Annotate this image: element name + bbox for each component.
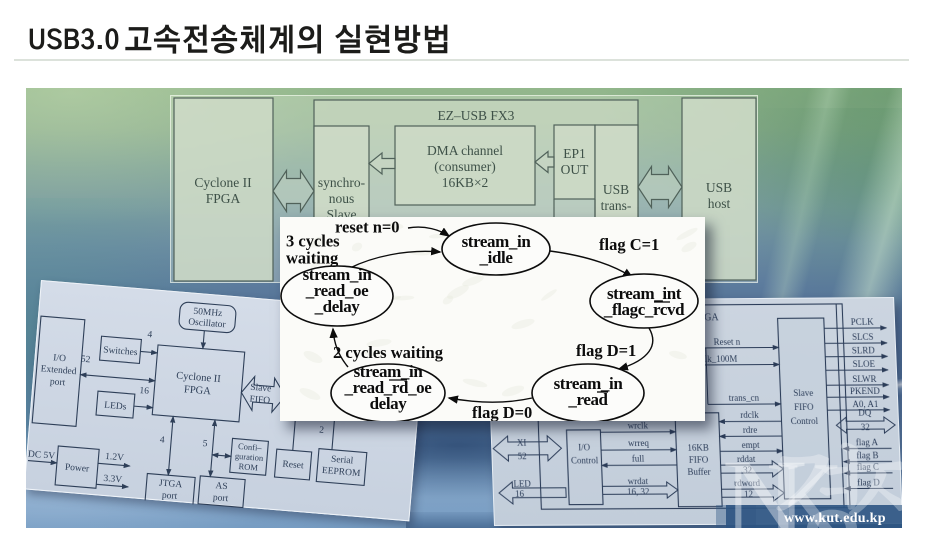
svg-text:3.3V: 3.3V	[103, 474, 123, 486]
svg-text:EZ–USB FX3: EZ–USB FX3	[438, 108, 515, 123]
svg-text:2: 2	[319, 426, 325, 436]
svg-text:port: port	[161, 491, 177, 502]
svg-text:I/O: I/O	[578, 442, 591, 452]
svg-text:32: 32	[861, 422, 870, 432]
svg-text:FIFO: FIFO	[794, 402, 814, 412]
svg-text:flag D=1: flag D=1	[576, 341, 636, 360]
svg-text:Cyclone II: Cyclone II	[176, 371, 222, 386]
svg-text:synchro-: synchro-	[318, 175, 366, 190]
svg-text:Slave: Slave	[793, 388, 813, 398]
svg-text:wrclk: wrclk	[627, 420, 648, 430]
svg-text:rdclk: rdclk	[740, 410, 759, 420]
svg-text:PKEND: PKEND	[850, 386, 881, 396]
svg-text:full: full	[632, 453, 645, 463]
svg-text:Serial: Serial	[331, 455, 354, 467]
svg-text:2 cycles waiting: 2 cycles waiting	[333, 343, 444, 362]
svg-text:FIFO: FIFO	[249, 395, 270, 407]
svg-text:4: 4	[159, 435, 165, 445]
svg-text:FPGA: FPGA	[184, 384, 212, 397]
svg-text:SLRD: SLRD	[852, 345, 876, 355]
svg-text:flag D: flag D	[857, 477, 881, 487]
svg-text:flag C: flag C	[857, 462, 880, 472]
svg-text:Power: Power	[64, 463, 90, 475]
svg-text:trans-: trans-	[601, 198, 632, 213]
svg-text:Slave: Slave	[250, 383, 272, 395]
svg-text:rddat: rddat	[737, 454, 756, 464]
svg-text:host: host	[708, 196, 731, 211]
svg-text:flag B: flag B	[856, 450, 879, 460]
svg-text:32: 32	[743, 465, 752, 475]
svg-text:trans_cn: trans_cn	[729, 393, 760, 403]
svg-text:port: port	[212, 493, 228, 504]
svg-text:Oscillator: Oscillator	[188, 317, 227, 330]
svg-text:wrdat: wrdat	[628, 476, 649, 486]
svg-text:52: 52	[518, 451, 527, 461]
svg-text:delay: delay	[370, 394, 408, 413]
svg-text:OUT: OUT	[561, 162, 589, 177]
svg-text:I/O: I/O	[53, 353, 67, 364]
svg-text:FIFO: FIFO	[689, 455, 709, 465]
svg-text:nous: nous	[329, 191, 355, 206]
svg-text:Buffer: Buffer	[687, 467, 710, 477]
svg-text:rdword: rdword	[734, 478, 761, 488]
svg-text:SLWR: SLWR	[852, 374, 877, 384]
svg-text:1.2V: 1.2V	[105, 452, 125, 464]
svg-text:Control: Control	[791, 416, 819, 426]
svg-text:52: 52	[80, 355, 91, 366]
svg-text:Switches: Switches	[103, 345, 138, 358]
svg-text:empt: empt	[742, 440, 761, 450]
svg-text:SLCS: SLCS	[852, 332, 874, 342]
svg-text:flag C=1: flag C=1	[599, 235, 659, 254]
svg-text:12: 12	[744, 489, 753, 499]
svg-text:waiting: waiting	[286, 249, 339, 268]
svg-text:AS: AS	[215, 481, 228, 492]
svg-text:5: 5	[202, 439, 208, 449]
svg-text:USB: USB	[603, 182, 629, 197]
svg-text:Cyclone II: Cyclone II	[194, 175, 252, 190]
svg-text:FPGA: FPGA	[206, 191, 241, 206]
svg-text:Control: Control	[571, 455, 599, 465]
svg-text:_flagc_rcvd: _flagc_rcvd	[603, 300, 685, 319]
svg-text:flag D=0: flag D=0	[472, 403, 532, 421]
svg-text:ROM: ROM	[238, 461, 259, 473]
svg-text:SLOE: SLOE	[852, 359, 875, 369]
svg-text:wrreq: wrreq	[628, 438, 650, 448]
svg-text:16KB: 16KB	[687, 443, 709, 453]
svg-text:Reset: Reset	[282, 460, 304, 472]
svg-text:flag A: flag A	[856, 437, 879, 447]
svg-text:16, 32: 16, 32	[627, 487, 650, 497]
svg-text:(consumer): (consumer)	[434, 159, 495, 174]
svg-text:LED: LED	[513, 479, 531, 489]
svg-text:reset n=0: reset n=0	[335, 218, 400, 237]
svg-text:rdre: rdre	[743, 425, 758, 435]
svg-text:USB: USB	[706, 180, 732, 195]
svg-text:port: port	[50, 377, 66, 388]
svg-text:LEDs: LEDs	[104, 401, 127, 413]
svg-text:DMA channel: DMA channel	[427, 143, 503, 158]
svg-text:16: 16	[515, 489, 525, 499]
svg-text:_delay: _delay	[314, 297, 361, 316]
svg-text:EEPROM: EEPROM	[321, 466, 361, 479]
svg-text:_idle: _idle	[479, 248, 514, 267]
svg-text:16: 16	[139, 386, 150, 397]
svg-text:16KB×2: 16KB×2	[442, 175, 489, 190]
svg-text:EP1: EP1	[563, 146, 586, 161]
svg-text:JTGA: JTGA	[159, 478, 183, 490]
svg-text:DC 5V: DC 5V	[27, 450, 55, 462]
svg-text:Reset n: Reset n	[713, 337, 740, 347]
svg-text:_read: _read	[567, 390, 608, 409]
svg-text:Extended: Extended	[40, 364, 77, 377]
svg-text:DQ: DQ	[858, 407, 872, 417]
svg-text:4: 4	[147, 330, 153, 340]
svg-text:clk_100M: clk_100M	[701, 354, 738, 364]
svg-text:PCLK: PCLK	[851, 317, 875, 327]
svg-text:XI: XI	[517, 438, 527, 448]
